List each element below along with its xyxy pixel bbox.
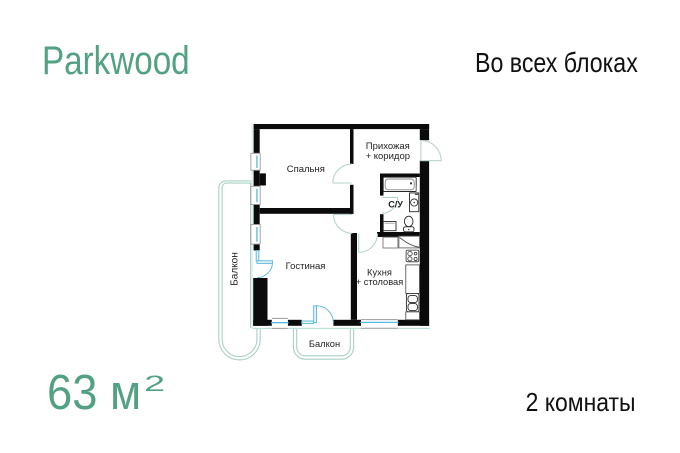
svg-text:Спальня: Спальня [287,164,325,175]
svg-text:+ коридор: + коридор [366,151,410,162]
svg-text:С/У: С/У [388,200,403,210]
svg-text:Гостиная: Гостиная [286,261,326,272]
svg-text:+ столовая: + столовая [356,277,404,287]
svg-text:Балкон: Балкон [230,252,241,286]
svg-text:Балкон: Балкон [309,339,340,349]
